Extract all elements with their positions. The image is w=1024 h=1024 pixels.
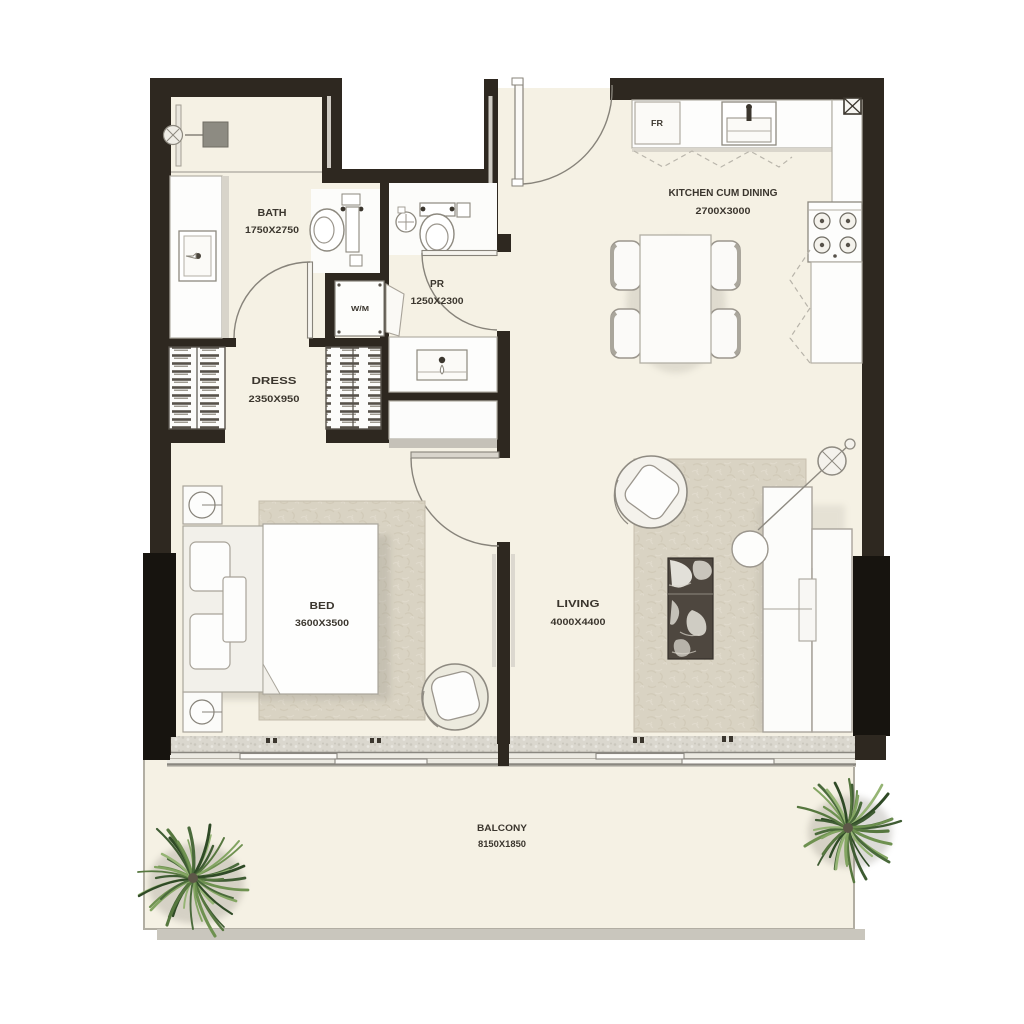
svg-text:1250X2300: 1250X2300 (411, 296, 464, 307)
svg-text:FR: FR (651, 119, 663, 128)
svg-text:3600X3500: 3600X3500 (295, 618, 349, 629)
svg-text:1750X2750: 1750X2750 (245, 225, 299, 236)
svg-text:KITCHEN CUM DINING: KITCHEN CUM DINING (669, 187, 778, 199)
svg-text:PR: PR (430, 279, 445, 290)
svg-text:4000X4400: 4000X4400 (551, 617, 606, 628)
svg-text:2700X3000: 2700X3000 (696, 206, 751, 217)
svg-text:W/M: W/M (351, 304, 369, 313)
svg-text:BED: BED (310, 601, 335, 612)
svg-text:2350X950: 2350X950 (249, 394, 300, 405)
svg-text:8150X1850: 8150X1850 (478, 839, 526, 849)
svg-text:LIVING: LIVING (557, 598, 600, 610)
svg-text:BALCONY: BALCONY (477, 823, 528, 834)
svg-text:DRESS: DRESS (252, 376, 297, 387)
svg-text:BATH: BATH (258, 208, 287, 219)
